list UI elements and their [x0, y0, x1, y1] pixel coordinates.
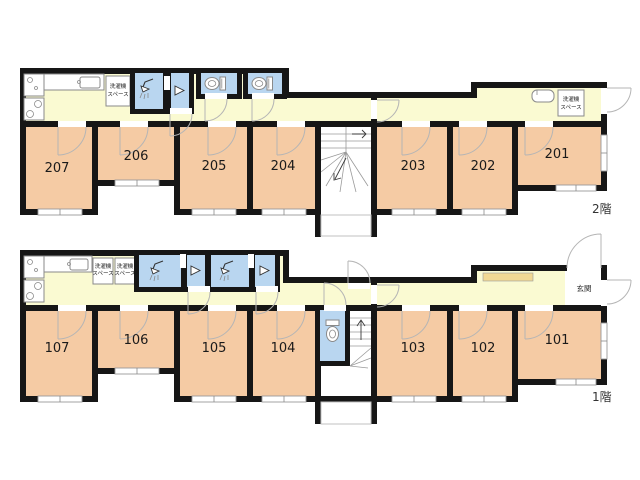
entrance-step	[483, 273, 533, 281]
floor-plan-canvas: 洗濯機 スペース 洗濯機 スペース	[0, 0, 640, 480]
room-207-label: 207	[45, 161, 70, 176]
room-204-label: 204	[271, 159, 296, 174]
room-201-label: 201	[545, 147, 570, 162]
floor1-stair-porch	[321, 402, 371, 424]
entrance-label: 玄関	[577, 283, 592, 293]
toilet-icon	[326, 320, 339, 342]
counter-sink-icon	[70, 259, 88, 270]
svg-text:スペース: スペース	[560, 104, 581, 111]
svg-text:スペース: スペース	[92, 270, 113, 277]
back-door-arc	[348, 261, 370, 289]
svg-text:洗濯機: 洗濯機	[95, 262, 112, 270]
washer-space-label: 洗濯機	[110, 82, 127, 90]
room-104-label: 104	[271, 341, 296, 356]
room-205-label: 205	[202, 159, 227, 174]
room-102-label: 102	[471, 341, 496, 356]
svg-text:洗濯機: 洗濯機	[117, 262, 134, 270]
floor2-stair-porch	[321, 215, 371, 236]
floor2-stairs	[321, 127, 371, 192]
floor-2-plan: 洗濯機 スペース 洗濯機 スペース	[20, 68, 631, 237]
floor2-label: 2階	[592, 201, 612, 216]
svg-text:スペース: スペース	[107, 91, 128, 98]
room-106-label: 106	[124, 333, 149, 348]
stove-icon	[24, 280, 44, 302]
room-202-label: 202	[471, 159, 496, 174]
room-206-label: 206	[124, 149, 149, 164]
washbasin-icon	[532, 90, 554, 102]
entrance-door-arc	[567, 234, 601, 268]
kitchen-sink-unit	[24, 256, 44, 278]
room-203-label: 203	[401, 159, 426, 174]
floor-1-plan: 洗濯機 スペース 洗濯機 スペース	[20, 234, 631, 424]
kitchen-sink-unit	[24, 74, 44, 96]
room-107-label: 107	[45, 341, 70, 356]
stove-icon	[24, 98, 44, 120]
room-103-label: 103	[401, 341, 426, 356]
washer-space-box	[106, 76, 130, 106]
washer-space-box	[558, 90, 584, 116]
toilet-icon	[205, 77, 226, 90]
toilet-icon	[252, 77, 273, 90]
counter-sink-icon	[80, 77, 100, 88]
svg-text:スペース: スペース	[114, 270, 135, 277]
room-105-label: 105	[202, 341, 227, 356]
room-101-label: 101	[545, 333, 570, 348]
floor1-label: 1階	[592, 389, 612, 404]
svg-text:洗濯機: 洗濯機	[563, 95, 580, 103]
